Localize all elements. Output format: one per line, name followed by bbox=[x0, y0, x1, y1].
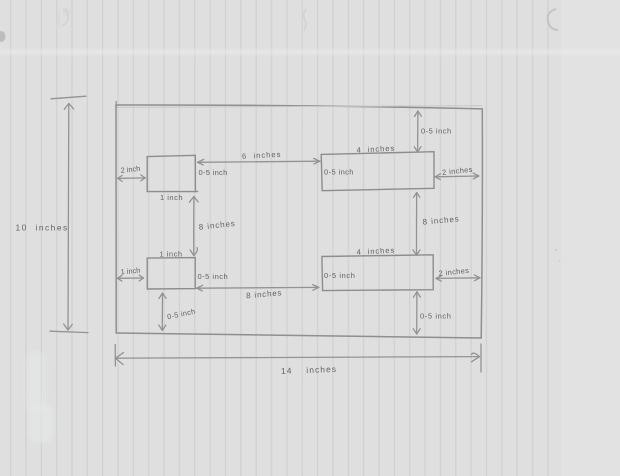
svg-text:2 inch: 2 inch bbox=[120, 164, 141, 175]
svg-text:2 inches: 2 inches bbox=[438, 266, 470, 278]
svg-text:2 inches: 2 inches bbox=[442, 165, 474, 177]
svg-text:0-5 inch: 0-5 inch bbox=[199, 168, 228, 177]
svg-text:14 inches: 14 inches bbox=[281, 364, 337, 376]
svg-text:6 inches: 6 inches bbox=[242, 150, 282, 161]
svg-text:0-5 inch: 0-5 inch bbox=[198, 272, 229, 281]
svg-text:0-5 inch: 0-5 inch bbox=[421, 127, 452, 136]
svg-text:0-5 inch: 0-5 inch bbox=[420, 312, 451, 321]
svg-text:0-5 inch: 0-5 inch bbox=[166, 307, 196, 322]
svg-text:1 inch: 1 inch bbox=[160, 193, 183, 202]
svg-text:8 inches: 8 inches bbox=[198, 219, 236, 232]
svg-text:1 inch: 1 inch bbox=[120, 266, 140, 277]
svg-text:10 inches: 10 inches bbox=[16, 223, 69, 233]
svg-text:1 inch: 1 inch bbox=[160, 250, 183, 259]
svg-text:8 inches: 8 inches bbox=[246, 288, 283, 300]
svg-text:0-5 inch: 0-5 inch bbox=[324, 271, 355, 280]
svg-text:0-5 inch: 0-5 inch bbox=[324, 168, 354, 177]
svg-text:8 inches: 8 inches bbox=[422, 214, 460, 226]
